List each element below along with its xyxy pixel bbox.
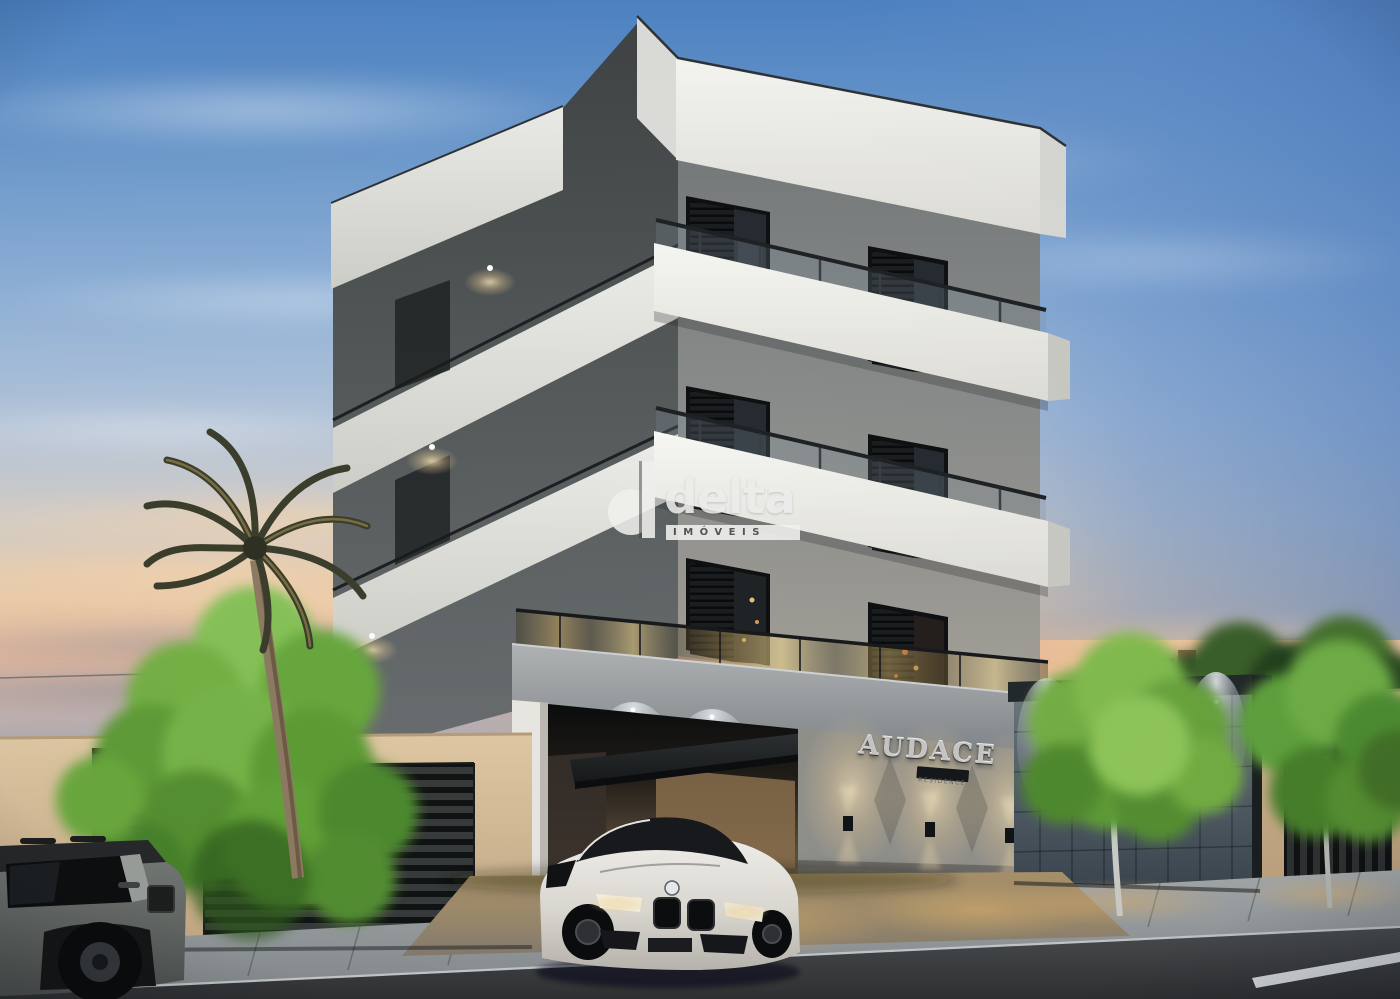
watermark-logo-bar-icon <box>642 461 655 538</box>
watermark: delta IMÓVEIS <box>596 452 808 548</box>
watermark-subtitle-bar: IMÓVEIS <box>666 525 800 540</box>
watermark-brand: delta <box>664 474 795 521</box>
watermark-subtitle: IMÓVEIS <box>666 527 766 538</box>
rendered-scene: delta IMÓVEIS AUDACE RESIDENCE <box>0 0 1400 999</box>
